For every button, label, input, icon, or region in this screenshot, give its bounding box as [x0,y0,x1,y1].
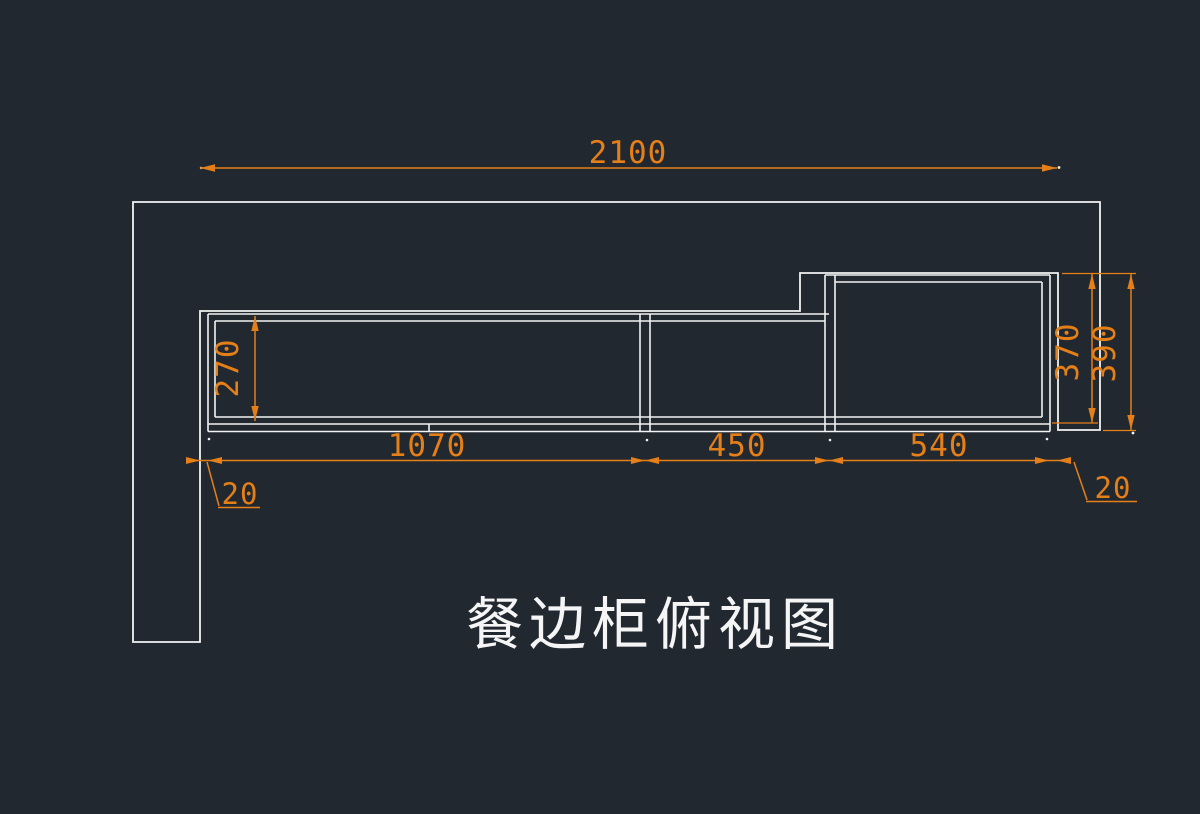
dim-left-depth-text: 270 [210,339,246,398]
dimension-left-depth: 270 [210,316,259,421]
cad-canvas[interactable]: 2100 270 370 390 1070 450 540 [0,0,1200,814]
dimension-chain-bottom: 1070 450 540 [186,428,1071,464]
dim-section3-text: 540 [910,428,969,464]
dimension-right-depth: 370 390 [1050,274,1136,431]
dimension-left-gap: 20 [207,462,260,511]
dimension-total-width: 2100 [200,135,1057,172]
defpoint-dots [200,166,1135,441]
cad-viewport[interactable]: 2100 270 370 390 1070 450 540 [0,0,1200,814]
dimension-right-gap: 20 [1074,462,1137,505]
cabinet-outline [208,275,1050,432]
drawing-title: 餐边柜俯视图 [466,592,844,658]
dim-right-depth-text: 370 [1050,323,1086,382]
dim-section2-text: 450 [708,428,767,464]
dim-total-width-text: 2100 [589,135,668,171]
wall-outline [133,202,1100,642]
dim-right-gap-text: 20 [1095,471,1132,505]
dim-section1-text: 1070 [388,428,467,464]
dim-right-depth-door-text: 390 [1087,324,1123,383]
dim-left-gap-text: 20 [222,477,259,511]
